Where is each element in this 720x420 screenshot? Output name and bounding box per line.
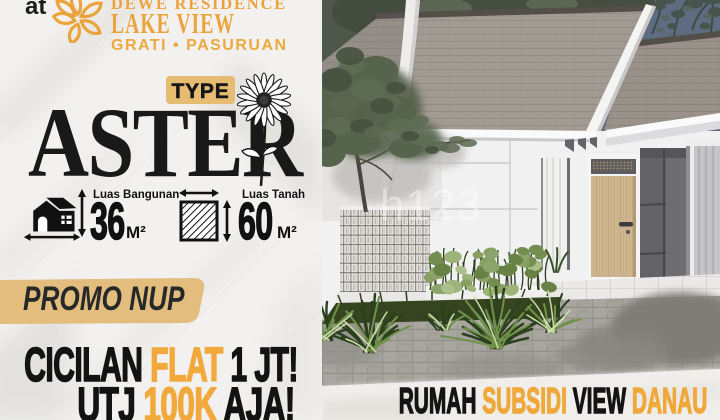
svg-text:h123: h123	[380, 181, 482, 230]
